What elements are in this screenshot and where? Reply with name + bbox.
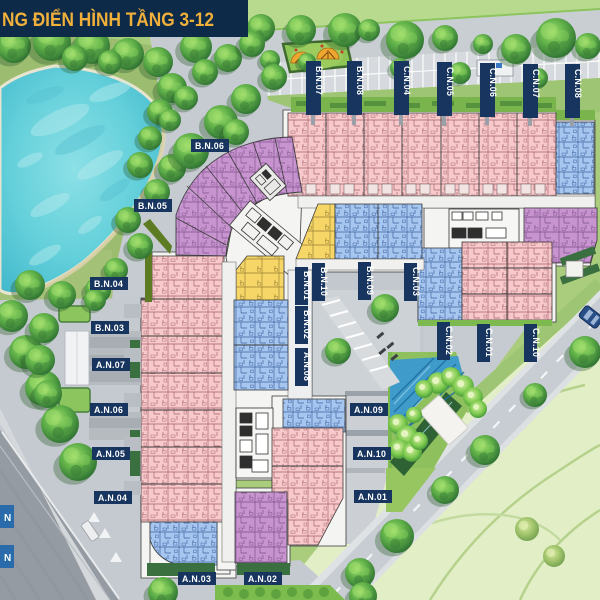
svg-text:B.N.10: B.N.10 [319,267,329,296]
svg-text:C.N.10: C.N.10 [531,328,541,357]
svg-text:A.N.05: A.N.05 [96,449,125,459]
svg-text:N: N [4,513,11,524]
svg-text:B.N.03: B.N.03 [95,323,124,333]
svg-text:C.N.08: C.N.08 [573,69,583,98]
svg-text:C.N.04: C.N.04 [402,66,412,95]
svg-text:A.N.03: A.N.03 [182,574,211,584]
svg-text:B.N.02: B.N.02 [302,310,312,339]
svg-text:C.N.05: C.N.05 [445,67,455,96]
svg-text:A.N.01: A.N.01 [358,492,387,502]
svg-text:B.N.01: B.N.01 [302,271,312,300]
svg-text:A.N.06: A.N.06 [94,405,123,415]
svg-text:N: N [4,553,11,564]
svg-text:B.N.09: B.N.09 [365,266,375,295]
svg-text:B.N.07: B.N.07 [314,66,324,95]
svg-text:A.N.07: A.N.07 [96,360,125,370]
svg-text:A.N.10: A.N.10 [357,449,386,459]
svg-text:A.N.08: A.N.08 [302,352,312,381]
svg-text:A.N.02: A.N.02 [248,574,277,584]
svg-text:B.N.04: B.N.04 [94,279,123,289]
svg-text:A.N.04: A.N.04 [98,493,127,503]
svg-text:B.N.08: B.N.08 [355,66,365,95]
svg-text:C.N.01: C.N.01 [484,328,494,357]
svg-text:C.N.07: C.N.07 [531,69,541,98]
svg-text:B.N.06: B.N.06 [195,141,224,151]
svg-text:C.N.02: C.N.02 [444,326,454,355]
svg-text:A.N.09: A.N.09 [354,405,383,415]
svg-text:B.N.05: B.N.05 [138,201,167,211]
svg-text:NG ĐIỂN HÌNH TẦNG 3-12: NG ĐIỂN HÌNH TẦNG 3-12 [2,8,214,31]
svg-text:C.N.03: C.N.03 [411,267,421,296]
svg-text:C.N.06: C.N.06 [488,68,498,97]
